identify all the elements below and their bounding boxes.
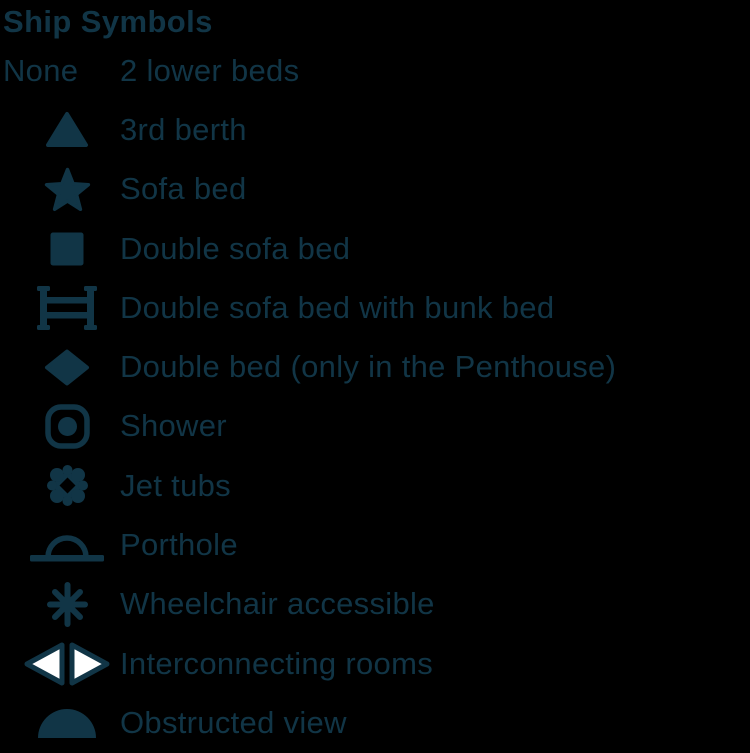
- interconnecting-rooms-icon: [23, 640, 111, 688]
- triangle-icon: [45, 111, 89, 149]
- ship-symbols-legend: None 2 lower beds 3rd berth Sofa bed Dou…: [0, 41, 750, 753]
- legend-label: Porthole: [120, 527, 238, 563]
- legend-label: Wheelchair accessible: [120, 586, 435, 622]
- legend-label: Interconnecting rooms: [120, 646, 433, 682]
- legend-label: Double bed (only in the Penthouse): [120, 349, 616, 385]
- none-symbol-cell: None: [0, 53, 120, 89]
- square-icon: [49, 231, 85, 267]
- legend-label: Obstructed view: [120, 705, 347, 741]
- legend-row-double-bed-penthouse: Double bed (only in the Penthouse): [0, 337, 750, 396]
- legend-row-jet-tubs: Jet tubs: [0, 456, 750, 515]
- jet-tubs-icon: [46, 464, 89, 507]
- star-icon: [44, 167, 91, 212]
- legend-row-2-lower-beds: None 2 lower beds: [0, 41, 750, 100]
- diamond-icon: [44, 349, 90, 386]
- legend-label: Shower: [120, 408, 227, 444]
- legend-label: 2 lower beds: [120, 53, 299, 89]
- legend-label: 3rd berth: [120, 112, 247, 148]
- legend-row-wheelchair-accessible: Wheelchair accessible: [0, 575, 750, 634]
- legend-label: Double sofa bed with bunk bed: [120, 290, 554, 326]
- legend-label: Jet tubs: [120, 468, 231, 504]
- wheelchair-asterisk-icon: [45, 581, 90, 628]
- legend-row-shower: Shower: [0, 397, 750, 456]
- legend-row-interconnecting-rooms: Interconnecting rooms: [0, 634, 750, 693]
- legend-row-obstructed-view: Obstructed view: [0, 693, 750, 752]
- legend-row-porthole: Porthole: [0, 515, 750, 574]
- legend-label: Double sofa bed: [120, 231, 350, 267]
- page-title: Ship Symbols: [0, 0, 750, 41]
- legend-row-3rd-berth: 3rd berth: [0, 100, 750, 159]
- none-label: None: [3, 53, 78, 89]
- bunk-bed-icon: [34, 285, 100, 331]
- legend-label: Sofa bed: [120, 171, 247, 207]
- legend-row-double-sofa-bed: Double sofa bed: [0, 219, 750, 278]
- obstructed-view-dome-icon: [37, 707, 97, 738]
- porthole-icon: [29, 526, 105, 564]
- shower-icon: [45, 404, 90, 449]
- legend-row-sofa-bed: Sofa bed: [0, 160, 750, 219]
- legend-row-bunk-bed: Double sofa bed with bunk bed: [0, 278, 750, 337]
